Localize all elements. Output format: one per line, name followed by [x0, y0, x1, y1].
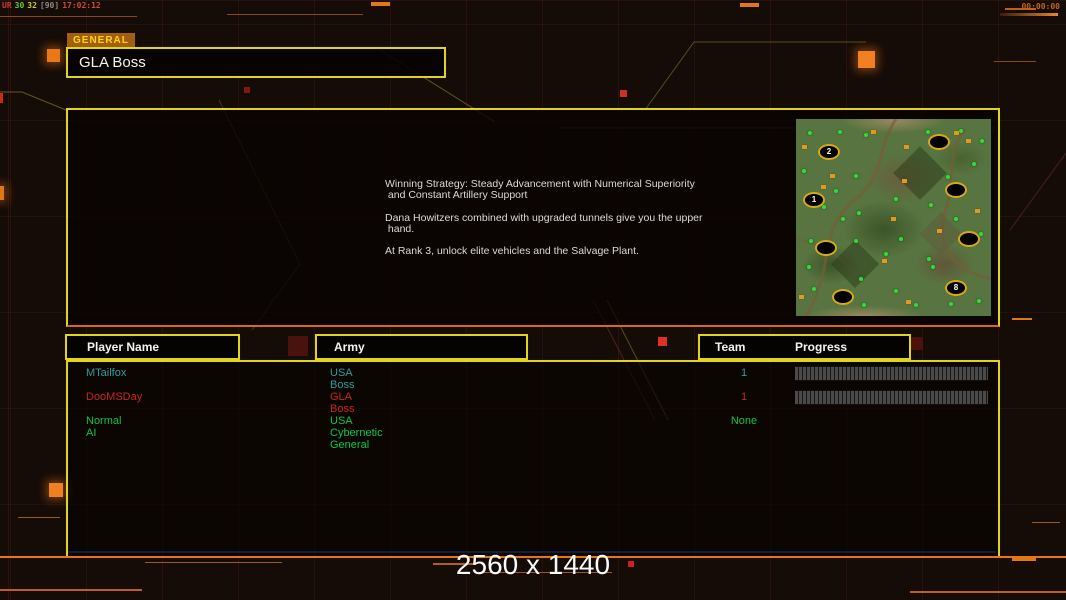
stats-part: [90]: [40, 1, 59, 10]
tree-marker: [972, 162, 976, 166]
timer-bar: [1000, 13, 1058, 16]
tree-marker: [946, 175, 950, 179]
decor-line: [1032, 522, 1060, 523]
decor-line: [910, 591, 1066, 593]
tree-marker: [979, 232, 983, 236]
header-army: Army: [315, 334, 528, 360]
minimap: 218: [795, 118, 992, 317]
tree-marker: [807, 265, 811, 269]
tree-marker: [899, 237, 903, 241]
team-cell: 1: [704, 367, 784, 379]
briefing-text: Winning Strategy: Steady Advancement wit…: [385, 179, 703, 257]
tree-marker: [954, 217, 958, 221]
header-player-name: Player Name: [65, 334, 240, 360]
decor-square: [910, 337, 923, 350]
team-cell: None: [704, 415, 784, 427]
army-cell: USA Boss: [330, 367, 354, 391]
tree-marker: [931, 265, 935, 269]
tree-marker: [834, 189, 838, 193]
progress-bar: [795, 390, 988, 405]
decor-square: [244, 87, 250, 93]
supply-marker: [954, 131, 959, 135]
tree-marker: [838, 130, 842, 134]
decor-line: [18, 517, 60, 518]
supply-marker: [830, 174, 835, 178]
tree-marker: [926, 130, 930, 134]
stats-part: 30: [15, 1, 25, 10]
stats-part: 17:02:12: [62, 1, 101, 10]
tree-marker: [959, 129, 963, 133]
supply-marker: [799, 295, 804, 299]
supply-marker: [906, 300, 911, 304]
header-team: Team: [715, 336, 745, 358]
tree-marker: [864, 133, 868, 137]
decor-square: [288, 336, 308, 356]
briefing-line: [385, 201, 703, 212]
stats-part: 32: [27, 1, 37, 10]
loading-screen: UR3032[90]17:02:12 00:00:00 GENERAL GLA …: [0, 0, 1066, 600]
tree-marker: [929, 203, 933, 207]
decor-square: [658, 337, 667, 346]
general-name-box: GLA Boss: [66, 47, 446, 78]
tree-marker: [857, 211, 861, 215]
supply-marker: [937, 229, 942, 233]
start-position-marker: [832, 289, 854, 305]
match-timer: 00:00:00: [1021, 2, 1060, 11]
decor-line: [227, 14, 363, 15]
stats-part: UR: [2, 1, 12, 10]
tree-marker: [841, 217, 845, 221]
tree-marker: [862, 303, 866, 307]
start-position-marker: 2: [818, 144, 840, 160]
decor-square: [49, 483, 63, 497]
team-cell: 1: [704, 391, 784, 403]
briefing-line: hand.: [385, 224, 703, 235]
briefing-line: Dana Howitzers combined with upgraded tu…: [385, 213, 703, 224]
header-progress: Progress: [795, 336, 847, 358]
header-team-progress: Team Progress: [698, 334, 911, 360]
decor-square: [858, 51, 875, 68]
tree-marker: [802, 169, 806, 173]
tree-marker: [914, 303, 918, 307]
supply-marker: [904, 145, 909, 149]
supply-marker: [891, 217, 896, 221]
player-name-cell: Normal AI: [86, 415, 121, 439]
decor-dash: [740, 3, 759, 7]
supply-marker: [802, 145, 807, 149]
tree-marker: [822, 205, 826, 209]
tree-marker: [980, 139, 984, 143]
resolution-text: 2560 x 1440: [0, 549, 1066, 581]
decor-square: [620, 90, 627, 97]
tree-marker: [854, 174, 858, 178]
supply-marker: [821, 185, 826, 189]
start-position-marker: [945, 182, 967, 198]
tree-marker: [812, 287, 816, 291]
start-position-marker: [958, 231, 980, 247]
tree-marker: [859, 277, 863, 281]
tree-marker: [949, 302, 953, 306]
tree-marker: [927, 257, 931, 261]
decor-dash: [0, 93, 3, 103]
start-position-marker: 1: [803, 192, 825, 208]
decor-square: [47, 49, 60, 62]
briefing-line: At Rank 3, unlock elite vehicles and the…: [385, 246, 703, 257]
briefing-line: and Constant Artillery Support: [385, 190, 703, 201]
player-name-cell: DooMSDay: [86, 391, 142, 403]
tree-marker: [894, 289, 898, 293]
tree-marker: [894, 197, 898, 201]
start-position-marker: 8: [945, 280, 967, 296]
start-position-marker: [928, 134, 950, 150]
army-cell: USA Cybernetic General: [330, 415, 383, 451]
decor-dash: [371, 2, 390, 6]
army-cell: GLA Boss: [330, 391, 354, 415]
start-position-marker: [815, 240, 837, 256]
decor-line: [0, 16, 137, 17]
tree-marker: [808, 131, 812, 135]
tree-marker: [809, 239, 813, 243]
decor-dash: [0, 186, 4, 200]
decor-dash: [1012, 318, 1032, 320]
supply-marker: [975, 209, 980, 213]
progress-bar: [795, 366, 988, 381]
tree-marker: [854, 239, 858, 243]
supply-marker: [966, 139, 971, 143]
supply-marker: [871, 130, 876, 134]
stats-overlay: UR3032[90]17:02:12: [2, 1, 104, 10]
decor-line: [994, 61, 1036, 62]
tree-marker: [884, 252, 888, 256]
supply-marker: [902, 179, 907, 183]
general-tab-label: GENERAL: [67, 33, 135, 47]
supply-marker: [882, 259, 887, 263]
tree-marker: [977, 299, 981, 303]
decor-line: [0, 589, 142, 591]
player-name-cell: MTailfox: [86, 367, 126, 379]
